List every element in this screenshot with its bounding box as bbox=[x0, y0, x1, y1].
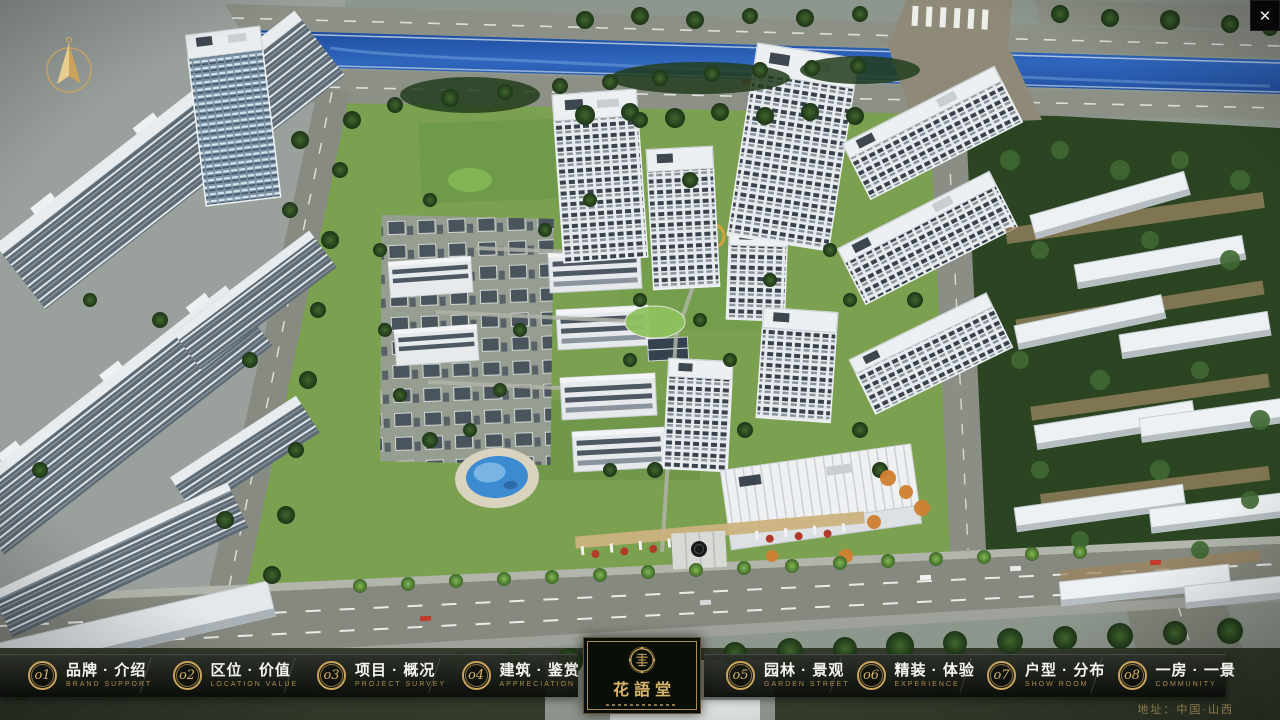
nav-number-badge: o6 bbox=[857, 661, 886, 690]
logo-seal-icon bbox=[628, 646, 656, 674]
nav-item-label-zh: 园林 · 景观 bbox=[764, 663, 835, 678]
nav-item-location-value[interactable]: o2 区位 · 价值LOCATION VALUE bbox=[145, 655, 290, 696]
compass-north-indicator bbox=[40, 34, 98, 98]
nav-item-label-zh: 精装 · 体验 bbox=[895, 663, 966, 678]
nav-item-label-zh: 一房 · 一景 bbox=[1156, 663, 1227, 678]
nav-item-architecture-appreciation[interactable]: o4 建筑 · 鉴赏APPRECIATION bbox=[434, 655, 579, 696]
nav-number-badge: o4 bbox=[462, 661, 491, 690]
logo-tagline-line bbox=[606, 704, 678, 706]
nav-item-number: o2 bbox=[179, 669, 195, 682]
nav-item-label-zh: 户型 · 分布 bbox=[1025, 663, 1096, 678]
nav-item-number: o3 bbox=[323, 669, 339, 682]
bottom-nav-right: o5 园林 · 景观GARDEN STREET o6 精装 · 体验EXPERI… bbox=[704, 654, 1226, 697]
nav-item-label-en: GARDEN STREET bbox=[764, 681, 835, 688]
nav-number-badge: o7 bbox=[987, 661, 1016, 690]
nav-item-room-view[interactable]: o8 一房 · 一景COMMUNITY bbox=[1096, 655, 1227, 696]
nav-item-number: o5 bbox=[732, 669, 748, 682]
address-text: 地址：中国·山西 bbox=[1137, 701, 1234, 717]
aerial-masterplan-view[interactable] bbox=[0, 0, 1280, 720]
nav-item-number: o1 bbox=[34, 669, 50, 682]
nav-item-label-en: PROJECT SURVEY bbox=[355, 681, 434, 688]
nav-item-brand-intro[interactable]: o1 品牌 · 介绍BRAND SUPPORT bbox=[0, 655, 145, 696]
nav-number-badge: o5 bbox=[726, 661, 755, 690]
presentation-root: ✕ o1 品牌 · 介绍BRAND SUPPORT o2 区位 · 价值LOCA… bbox=[0, 0, 1280, 720]
project-logo[interactable]: 花語堂 bbox=[583, 637, 701, 714]
nav-item-label-zh: 品牌 · 介绍 bbox=[66, 663, 145, 678]
nav-item-label-en: SHOW ROOM bbox=[1025, 681, 1096, 688]
nav-item-floorplan-distribution[interactable]: o7 户型 · 分布SHOW ROOM bbox=[965, 655, 1096, 696]
nav-item-number: o8 bbox=[1124, 669, 1140, 682]
nav-item-project-overview[interactable]: o3 项目 · 概况PROJECT SURVEY bbox=[289, 655, 434, 696]
nav-item-label-en: APPRECIATION bbox=[500, 681, 579, 688]
nav-number-badge: o3 bbox=[317, 661, 346, 690]
nav-number-badge: o8 bbox=[1118, 661, 1147, 690]
bottom-nav-left: o1 品牌 · 介绍BRAND SUPPORT o2 区位 · 价值LOCATI… bbox=[0, 654, 578, 697]
nav-item-label-en: BRAND SUPPORT bbox=[66, 681, 145, 688]
logo-title: 花語堂 bbox=[608, 676, 676, 700]
nav-item-garden-landscape[interactable]: o5 园林 · 景观GARDEN STREET bbox=[704, 655, 835, 696]
nav-item-label-en: LOCATION VALUE bbox=[211, 681, 290, 688]
nav-item-label-en: EXPERIENCE bbox=[895, 681, 966, 688]
nav-item-number: o4 bbox=[468, 669, 484, 682]
compass-top-dot bbox=[67, 38, 72, 43]
nav-number-badge: o2 bbox=[173, 661, 202, 690]
nav-item-label-zh: 项目 · 概况 bbox=[355, 663, 434, 678]
nav-item-number: o7 bbox=[993, 669, 1009, 682]
nav-item-label-zh: 区位 · 价值 bbox=[211, 663, 290, 678]
nav-item-interior-experience[interactable]: o6 精装 · 体验EXPERIENCE bbox=[835, 655, 966, 696]
nav-item-label-en: COMMUNITY bbox=[1156, 681, 1227, 688]
close-button[interactable]: ✕ bbox=[1250, 0, 1280, 31]
nav-number-badge: o1 bbox=[28, 661, 57, 690]
vignette-overlay bbox=[0, 0, 1280, 720]
nav-item-label-zh: 建筑 · 鉴赏 bbox=[500, 663, 579, 678]
nav-item-number: o6 bbox=[863, 669, 879, 682]
close-icon: ✕ bbox=[1259, 7, 1272, 25]
